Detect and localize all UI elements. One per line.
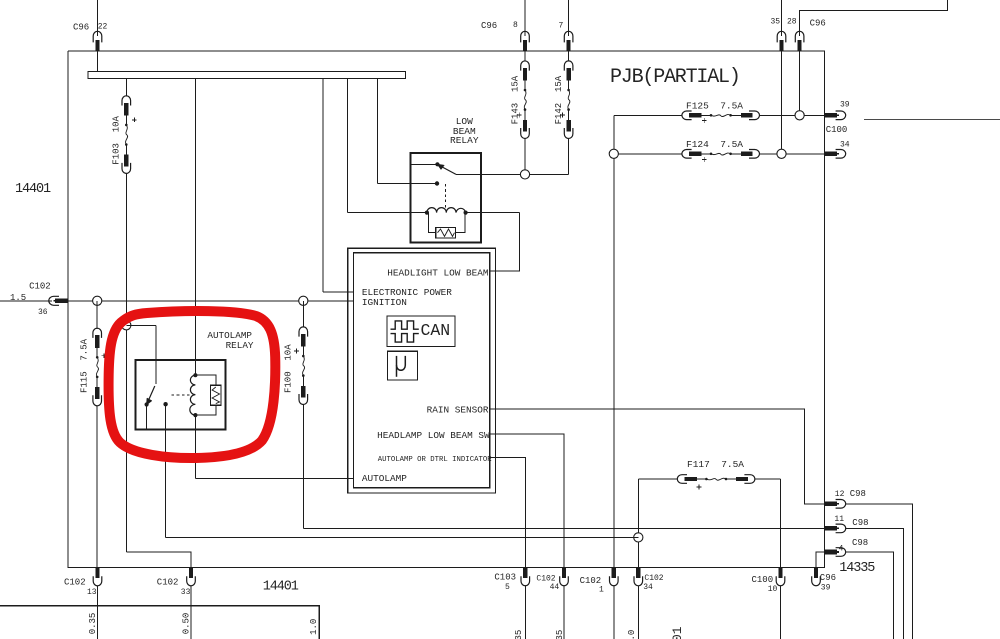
svg-text:7: 7 [559,22,564,31]
svg-text:C100: C100 [752,575,774,585]
svg-text:5: 5 [505,583,510,592]
svg-text:C102: C102 [64,578,86,588]
svg-text:39: 39 [840,100,850,109]
svg-text:13: 13 [87,588,97,597]
svg-text:0.35: 0.35 [514,630,524,639]
svg-text:C103: C103 [494,573,516,583]
svg-text:HEADLAMP LOW BEAM SW: HEADLAMP LOW BEAM SW [377,430,490,441]
svg-text:14401: 14401 [15,182,51,197]
svg-text:4: 4 [839,545,844,554]
svg-text:HEADLIGHT LOW BEAM: HEADLIGHT LOW BEAM [387,268,489,279]
svg-text:8: 8 [513,21,518,30]
svg-text:22: 22 [98,23,108,32]
svg-text:C102: C102 [29,281,51,291]
svg-text:AUTOLAMP: AUTOLAMP [362,473,407,484]
svg-text:39: 39 [821,584,831,593]
svg-text:C98: C98 [852,518,868,528]
svg-text:14335: 14335 [839,561,875,576]
svg-text:C100: C100 [826,125,848,135]
svg-text:0.35: 0.35 [555,630,565,639]
svg-text:28: 28 [787,18,797,27]
svg-text:36: 36 [38,308,48,317]
svg-text:34: 34 [643,583,653,592]
svg-text:10: 10 [768,585,778,594]
svg-text:RELAY: RELAY [450,135,479,146]
svg-text:C102: C102 [580,576,602,586]
svg-text:34: 34 [840,140,850,149]
svg-text:0.35: 0.35 [88,613,98,635]
svg-text:1.0: 1.0 [627,630,637,639]
svg-text:IGNITION: IGNITION [362,297,407,308]
svg-text:F100 10A: F100 10A [284,344,294,393]
svg-text:C102: C102 [644,574,663,583]
svg-text:35: 35 [771,18,781,27]
svg-text:1: 1 [599,586,604,595]
svg-text:14401: 14401 [263,580,299,595]
svg-text:1.5: 1.5 [10,293,26,303]
svg-text:C96: C96 [810,19,826,29]
svg-text:AUTOLAMP OR DTRL INDICATOR: AUTOLAMP OR DTRL INDICATOR [378,456,492,464]
svg-text:PJB(PARTIAL): PJB(PARTIAL) [610,66,740,89]
svg-text:44: 44 [550,583,560,592]
svg-text:C102: C102 [536,575,555,584]
svg-text:C98: C98 [852,538,868,548]
svg-text:F117 7.5A: F117 7.5A [687,459,744,470]
svg-text:14401: 14401 [670,626,685,639]
svg-text:C102: C102 [157,578,179,588]
svg-text:F125 7.5A: F125 7.5A [686,101,743,112]
svg-text:F103 10A: F103 10A [111,115,121,164]
svg-text:RAIN SENSOR: RAIN SENSOR [427,405,489,416]
svg-text:RELAY: RELAY [226,340,254,351]
svg-text:F124 7.5A: F124 7.5A [686,139,743,150]
svg-text:C98: C98 [850,489,866,499]
svg-text:F115 7.5A: F115 7.5A [80,338,90,393]
svg-text:C96: C96 [73,22,89,32]
svg-text:C96: C96 [481,21,497,31]
svg-text:CAN: CAN [421,321,451,340]
svg-text:12: 12 [835,490,845,499]
svg-text:C96: C96 [820,573,836,583]
svg-text:33: 33 [181,588,191,597]
svg-text:0.50: 0.50 [181,613,191,635]
svg-text:11: 11 [834,515,844,524]
svg-text:1.0: 1.0 [309,619,319,635]
